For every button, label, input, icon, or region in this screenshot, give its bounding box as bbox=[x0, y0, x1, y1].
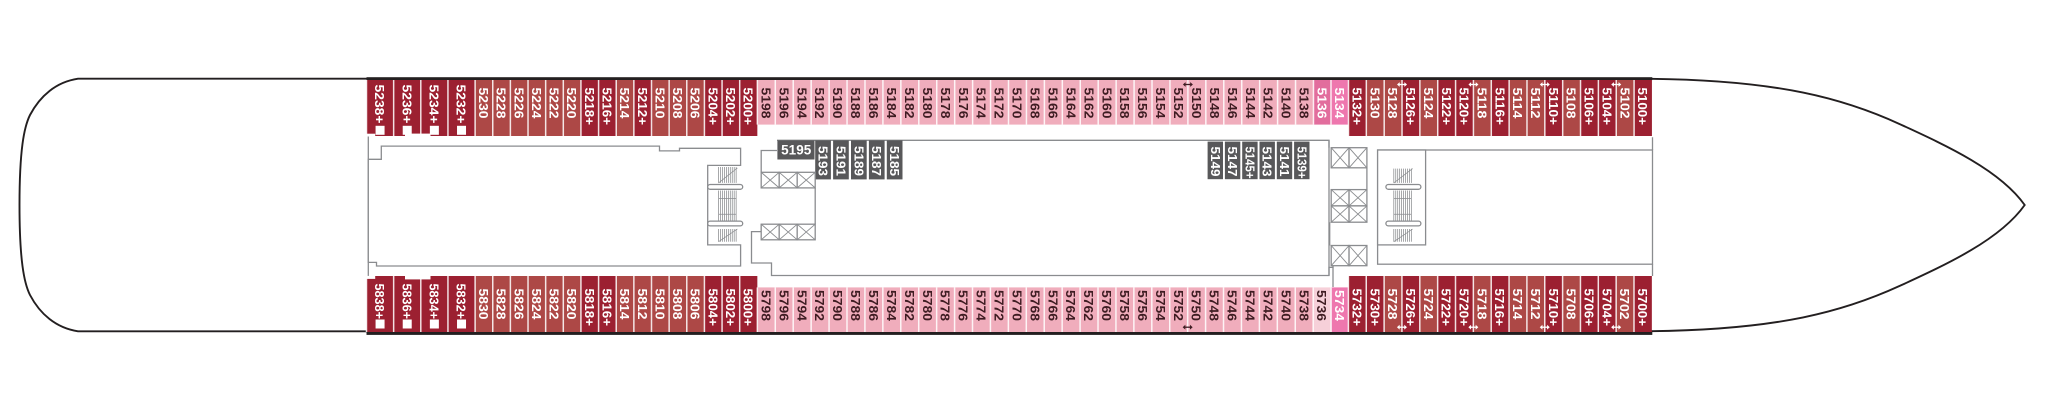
svg-text:5732+: 5732+ bbox=[1349, 289, 1364, 327]
svg-text:5820: 5820 bbox=[564, 289, 579, 320]
svg-text:5102: 5102 bbox=[1617, 88, 1632, 119]
svg-text:5184: 5184 bbox=[884, 88, 899, 120]
svg-text:5828: 5828 bbox=[494, 289, 509, 320]
svg-text:5176: 5176 bbox=[956, 88, 971, 119]
svg-text:5782: 5782 bbox=[902, 290, 917, 321]
svg-text:5764: 5764 bbox=[1063, 290, 1078, 322]
svg-text:5718: 5718 bbox=[1474, 289, 1489, 320]
svg-text:5734: 5734 bbox=[1332, 290, 1347, 322]
svg-text:5768: 5768 bbox=[1027, 290, 1042, 321]
svg-text:5216+: 5216+ bbox=[600, 88, 615, 126]
svg-text:5187: 5187 bbox=[869, 146, 883, 176]
svg-text:5152: 5152 bbox=[1171, 88, 1186, 119]
svg-text:5830: 5830 bbox=[476, 289, 491, 320]
svg-text:5758: 5758 bbox=[1117, 290, 1132, 321]
svg-text:5766: 5766 bbox=[1045, 290, 1060, 321]
svg-text:5236+: 5236+ bbox=[399, 85, 414, 124]
svg-text:5132+: 5132+ bbox=[1350, 88, 1365, 126]
svg-text:5792: 5792 bbox=[812, 290, 827, 321]
svg-text:5190: 5190 bbox=[830, 88, 845, 119]
svg-text:5826: 5826 bbox=[511, 289, 526, 320]
svg-text:5139+: 5139+ bbox=[1294, 147, 1308, 179]
svg-text:5722+: 5722+ bbox=[1439, 289, 1454, 327]
svg-text:5145+: 5145+ bbox=[1242, 147, 1256, 179]
svg-text:5195: 5195 bbox=[781, 143, 812, 158]
svg-text:5180: 5180 bbox=[920, 88, 935, 119]
svg-text:5712: 5712 bbox=[1528, 289, 1543, 320]
svg-text:5185: 5185 bbox=[887, 146, 901, 176]
svg-text:5788: 5788 bbox=[848, 290, 863, 321]
svg-text:5744: 5744 bbox=[1243, 290, 1258, 322]
svg-text:5804+: 5804+ bbox=[705, 289, 720, 327]
svg-text:5836+: 5836+ bbox=[399, 284, 414, 320]
svg-text:5838+: 5838+ bbox=[372, 284, 387, 320]
svg-text:5150: 5150 bbox=[1189, 88, 1204, 119]
svg-text:5218+: 5218+ bbox=[582, 88, 597, 126]
svg-text:5234+: 5234+ bbox=[426, 85, 441, 124]
svg-text:5192: 5192 bbox=[812, 88, 827, 119]
svg-text:5814: 5814 bbox=[617, 289, 632, 321]
svg-text:5776: 5776 bbox=[956, 290, 971, 321]
svg-text:5834+: 5834+ bbox=[426, 284, 441, 320]
svg-text:5108: 5108 bbox=[1564, 88, 1579, 119]
svg-text:5138: 5138 bbox=[1297, 88, 1312, 119]
svg-text:5154: 5154 bbox=[1153, 88, 1168, 120]
svg-text:5778: 5778 bbox=[938, 290, 953, 321]
svg-text:5728: 5728 bbox=[1385, 289, 1400, 320]
svg-text:5720+: 5720+ bbox=[1457, 289, 1472, 327]
svg-text:5736: 5736 bbox=[1314, 290, 1329, 321]
svg-text:5118: 5118 bbox=[1474, 88, 1489, 119]
svg-text:5784: 5784 bbox=[884, 290, 899, 322]
svg-text:5702: 5702 bbox=[1617, 289, 1632, 320]
svg-text:5149: 5149 bbox=[1208, 147, 1222, 177]
svg-text:5228: 5228 bbox=[494, 88, 509, 119]
svg-text:5126+: 5126+ bbox=[1403, 88, 1418, 126]
svg-text:5198: 5198 bbox=[758, 88, 773, 119]
svg-text:5704+: 5704+ bbox=[1599, 289, 1614, 327]
svg-text:5200+: 5200+ bbox=[741, 88, 756, 126]
svg-text:5172: 5172 bbox=[992, 88, 1007, 119]
svg-text:5140: 5140 bbox=[1279, 88, 1294, 119]
svg-text:5202+: 5202+ bbox=[723, 88, 738, 126]
svg-text:5738: 5738 bbox=[1296, 290, 1311, 321]
svg-text:5756: 5756 bbox=[1135, 290, 1150, 321]
svg-text:5174: 5174 bbox=[974, 88, 989, 120]
svg-text:5748: 5748 bbox=[1207, 290, 1222, 321]
svg-text:5116+: 5116+ bbox=[1492, 88, 1507, 126]
svg-text:5726+: 5726+ bbox=[1403, 289, 1418, 327]
svg-text:5232+: 5232+ bbox=[454, 85, 469, 124]
svg-text:5212+: 5212+ bbox=[635, 88, 650, 126]
svg-text:5100+: 5100+ bbox=[1635, 88, 1650, 126]
svg-text:5112: 5112 bbox=[1528, 88, 1543, 119]
svg-text:5110+: 5110+ bbox=[1546, 88, 1561, 126]
svg-text:5106+: 5106+ bbox=[1582, 88, 1597, 126]
svg-text:5794: 5794 bbox=[794, 290, 809, 322]
svg-text:5822: 5822 bbox=[547, 289, 562, 320]
svg-text:5144: 5144 bbox=[1243, 88, 1258, 120]
svg-text:5772: 5772 bbox=[991, 290, 1006, 321]
svg-text:5800+: 5800+ bbox=[741, 289, 756, 327]
svg-text:5222: 5222 bbox=[547, 88, 562, 119]
svg-text:5214: 5214 bbox=[617, 88, 632, 120]
svg-text:5710+: 5710+ bbox=[1546, 289, 1561, 327]
svg-text:5196: 5196 bbox=[776, 88, 791, 119]
svg-text:5189: 5189 bbox=[851, 146, 865, 176]
svg-text:5166: 5166 bbox=[1045, 88, 1060, 119]
svg-text:5824: 5824 bbox=[529, 289, 544, 321]
svg-text:5796: 5796 bbox=[776, 290, 791, 321]
svg-text:5114: 5114 bbox=[1510, 88, 1525, 120]
svg-text:5158: 5158 bbox=[1117, 88, 1132, 119]
svg-text:5818+: 5818+ bbox=[582, 289, 597, 327]
svg-text:5120+: 5120+ bbox=[1457, 88, 1472, 126]
svg-text:5134: 5134 bbox=[1332, 88, 1347, 120]
svg-text:5832+: 5832+ bbox=[454, 284, 469, 320]
svg-text:5700+: 5700+ bbox=[1635, 289, 1650, 327]
svg-text:5136: 5136 bbox=[1314, 88, 1329, 119]
svg-text:5742: 5742 bbox=[1260, 290, 1275, 321]
svg-text:5208: 5208 bbox=[670, 88, 685, 119]
svg-text:5802+: 5802+ bbox=[723, 289, 738, 327]
svg-text:5762: 5762 bbox=[1081, 290, 1096, 321]
svg-text:5730+: 5730+ bbox=[1367, 289, 1382, 327]
svg-text:5191: 5191 bbox=[833, 146, 847, 176]
svg-text:5182: 5182 bbox=[902, 88, 917, 119]
svg-text:5780: 5780 bbox=[920, 290, 935, 321]
svg-text:5168: 5168 bbox=[1028, 88, 1043, 119]
svg-text:5220: 5220 bbox=[564, 88, 579, 119]
svg-text:5224: 5224 bbox=[529, 88, 544, 120]
svg-text:5708: 5708 bbox=[1564, 289, 1579, 320]
svg-text:5206: 5206 bbox=[688, 88, 703, 119]
svg-text:5790: 5790 bbox=[830, 290, 845, 321]
svg-text:5812: 5812 bbox=[635, 289, 650, 320]
svg-text:5750: 5750 bbox=[1189, 290, 1204, 321]
svg-text:5160: 5160 bbox=[1099, 88, 1114, 119]
svg-text:5816+: 5816+ bbox=[600, 289, 615, 327]
svg-text:5230: 5230 bbox=[476, 88, 491, 119]
svg-text:5808: 5808 bbox=[670, 289, 685, 320]
svg-text:5164: 5164 bbox=[1063, 88, 1078, 120]
svg-text:5204+: 5204+ bbox=[705, 88, 720, 126]
svg-text:5724: 5724 bbox=[1421, 289, 1436, 321]
svg-text:5104+: 5104+ bbox=[1599, 88, 1614, 126]
svg-text:5210: 5210 bbox=[652, 88, 667, 119]
svg-text:5706+: 5706+ bbox=[1581, 289, 1596, 327]
svg-text:5170: 5170 bbox=[1010, 88, 1025, 119]
svg-text:5740: 5740 bbox=[1278, 290, 1293, 321]
svg-text:5148: 5148 bbox=[1207, 88, 1222, 119]
svg-text:5774: 5774 bbox=[974, 290, 989, 322]
svg-text:5760: 5760 bbox=[1099, 290, 1114, 321]
svg-text:5143: 5143 bbox=[1260, 147, 1274, 177]
svg-text:5162: 5162 bbox=[1081, 88, 1096, 119]
svg-text:5746: 5746 bbox=[1225, 290, 1240, 321]
svg-text:5714: 5714 bbox=[1510, 289, 1525, 321]
svg-text:5754: 5754 bbox=[1153, 290, 1168, 322]
svg-text:5226: 5226 bbox=[511, 88, 526, 119]
svg-text:5770: 5770 bbox=[1009, 290, 1024, 321]
svg-text:5141: 5141 bbox=[1277, 147, 1291, 177]
svg-text:5752: 5752 bbox=[1171, 290, 1186, 321]
svg-text:5124: 5124 bbox=[1421, 88, 1436, 120]
svg-text:5194: 5194 bbox=[794, 88, 809, 120]
svg-text:5810: 5810 bbox=[652, 289, 667, 320]
svg-text:5193: 5193 bbox=[816, 146, 830, 176]
svg-text:5128: 5128 bbox=[1385, 88, 1400, 119]
svg-text:5186: 5186 bbox=[866, 88, 881, 119]
svg-text:5142: 5142 bbox=[1261, 88, 1276, 119]
svg-text:5130: 5130 bbox=[1367, 88, 1382, 119]
svg-text:5716+: 5716+ bbox=[1492, 289, 1507, 327]
svg-text:5188: 5188 bbox=[848, 88, 863, 119]
svg-text:5147: 5147 bbox=[1225, 147, 1239, 177]
svg-text:5178: 5178 bbox=[938, 88, 953, 119]
svg-text:5786: 5786 bbox=[866, 290, 881, 321]
svg-text:5238+: 5238+ bbox=[372, 85, 387, 124]
svg-text:5806: 5806 bbox=[688, 289, 703, 320]
svg-text:5146: 5146 bbox=[1225, 88, 1240, 119]
svg-text:5798: 5798 bbox=[758, 290, 773, 321]
svg-text:5156: 5156 bbox=[1135, 88, 1150, 119]
svg-text:5122+: 5122+ bbox=[1439, 88, 1454, 126]
